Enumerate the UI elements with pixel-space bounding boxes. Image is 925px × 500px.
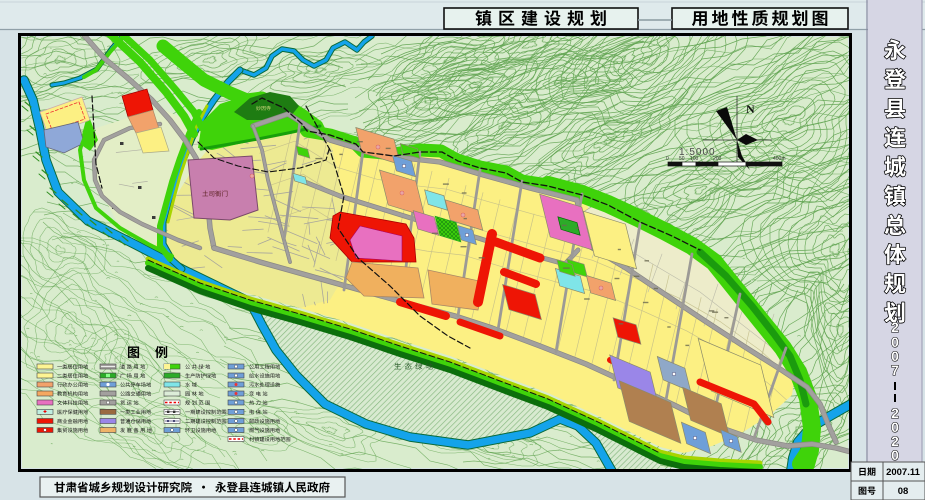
svg-text:7: 7 <box>891 363 899 378</box>
svg-text:0: 0 <box>666 156 669 162</box>
svg-text:400m: 400m <box>773 156 786 162</box>
svg-text:200: 200 <box>713 156 722 162</box>
svg-text:50: 50 <box>679 156 685 162</box>
svg-text:0: 0 <box>891 349 899 364</box>
svg-text:08: 08 <box>898 486 909 497</box>
svg-text:0: 0 <box>891 420 899 435</box>
svg-text:2: 2 <box>891 320 899 335</box>
svg-text:0: 0 <box>891 335 899 350</box>
svg-text:100: 100 <box>690 156 699 162</box>
svg-text:2007.11: 2007.11 <box>886 467 921 478</box>
svg-text:2: 2 <box>891 406 899 421</box>
svg-text:0: 0 <box>891 448 899 463</box>
svg-text:N: N <box>746 102 755 116</box>
svg-text:2: 2 <box>891 434 899 449</box>
